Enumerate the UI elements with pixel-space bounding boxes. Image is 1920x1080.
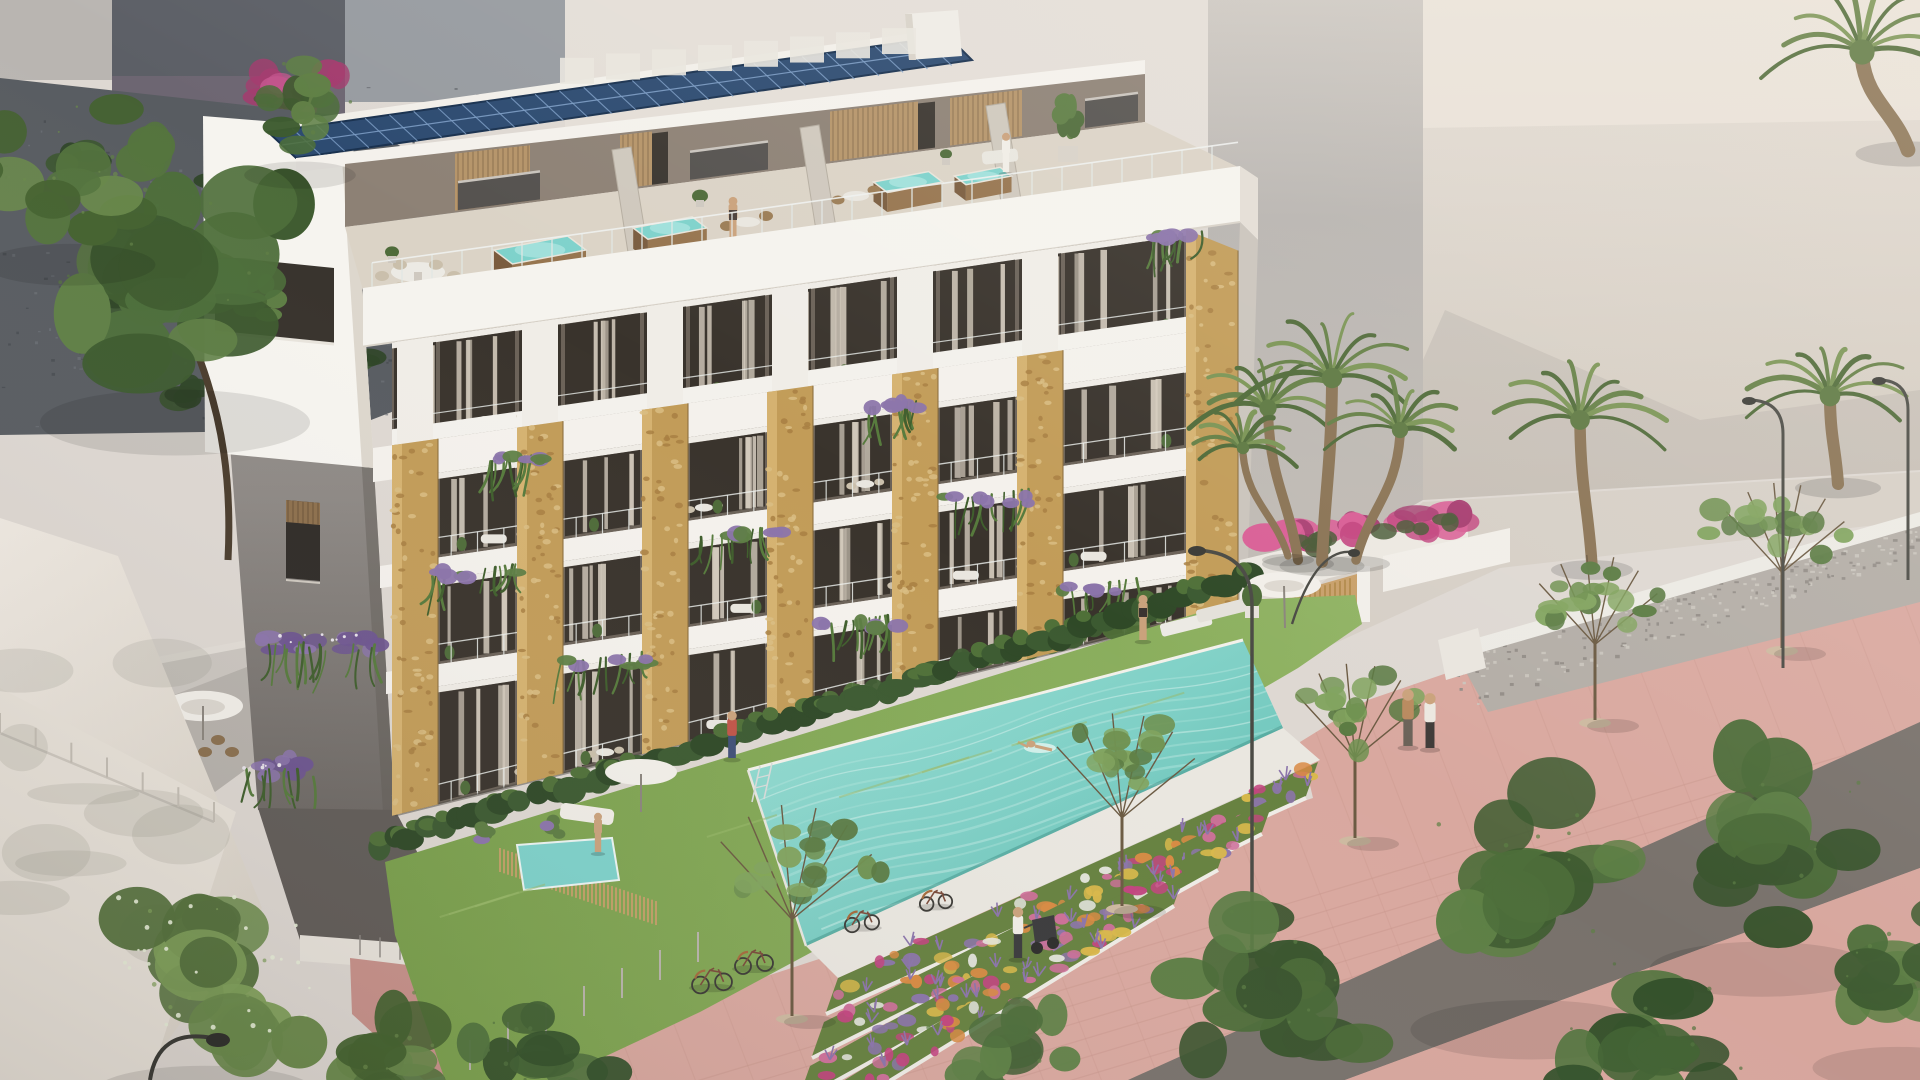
scene-svg	[0, 0, 1920, 1080]
lighting-overlay	[0, 0, 1920, 1080]
architectural-render: Aerial render of a modern white apartmen…	[0, 0, 1920, 1080]
